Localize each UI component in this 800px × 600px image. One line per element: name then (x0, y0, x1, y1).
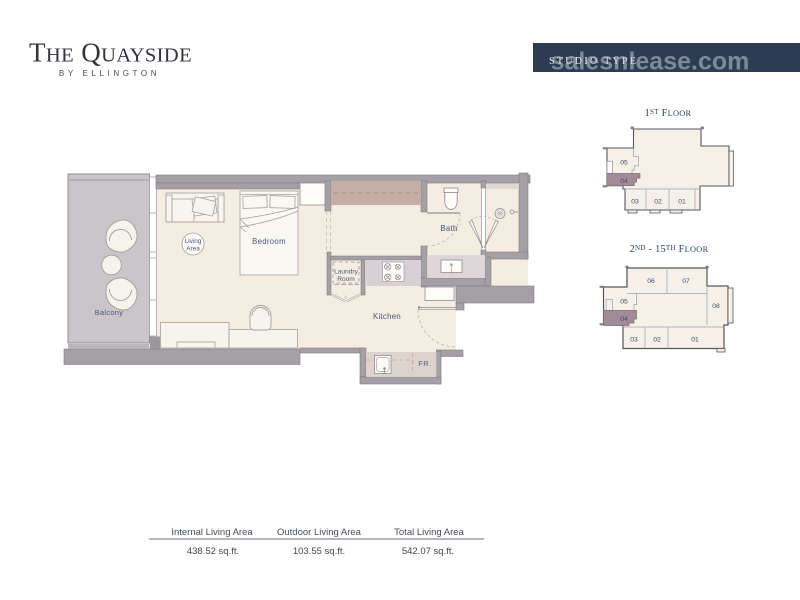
svg-text:Living: Living (185, 238, 202, 245)
svg-text:05: 05 (620, 299, 628, 306)
svg-text:Room: Room (337, 276, 355, 283)
svg-text:1ST FLOOR: 1ST FLOOR (645, 108, 692, 119)
svg-text:BY ELLINGTON: BY ELLINGTON (59, 69, 160, 78)
svg-text:03: 03 (631, 199, 639, 206)
svg-text:04: 04 (620, 178, 628, 185)
svg-text:FR.: FR. (418, 359, 432, 368)
svg-text:THE QUAYSIDE: THE QUAYSIDE (29, 38, 192, 68)
svg-text:Bath: Bath (440, 224, 457, 233)
svg-text:Total Living Area: Total Living Area (394, 527, 464, 538)
svg-text:salesnlease.com: salesnlease.com (551, 48, 750, 76)
svg-text:06: 06 (647, 278, 655, 285)
svg-text:03: 03 (630, 337, 638, 344)
svg-text:103.55 sq.ft.: 103.55 sq.ft. (293, 546, 345, 557)
svg-text:01: 01 (691, 337, 699, 344)
svg-text:Outdoor Living Area: Outdoor Living Area (277, 527, 362, 538)
svg-text:04: 04 (620, 316, 628, 323)
svg-text:01: 01 (678, 199, 686, 206)
svg-text:Bedroom: Bedroom (252, 237, 286, 246)
svg-text:438.52 sq.ft.: 438.52 sq.ft. (187, 546, 239, 557)
svg-text:02: 02 (653, 337, 661, 344)
svg-text:07: 07 (682, 278, 690, 285)
svg-text:Area: Area (186, 246, 200, 253)
svg-text:02: 02 (654, 199, 662, 206)
svg-text:08: 08 (712, 303, 720, 310)
svg-text:05: 05 (620, 160, 628, 167)
svg-text:2ND - 15TH FLOOR: 2ND - 15TH FLOOR (630, 244, 709, 255)
svg-text:Laundry: Laundry (334, 269, 359, 276)
svg-text:Internal Living Area: Internal Living Area (171, 527, 253, 538)
svg-text:Kitchen: Kitchen (373, 312, 401, 321)
svg-text:542.07 sq.ft.: 542.07 sq.ft. (402, 546, 454, 557)
